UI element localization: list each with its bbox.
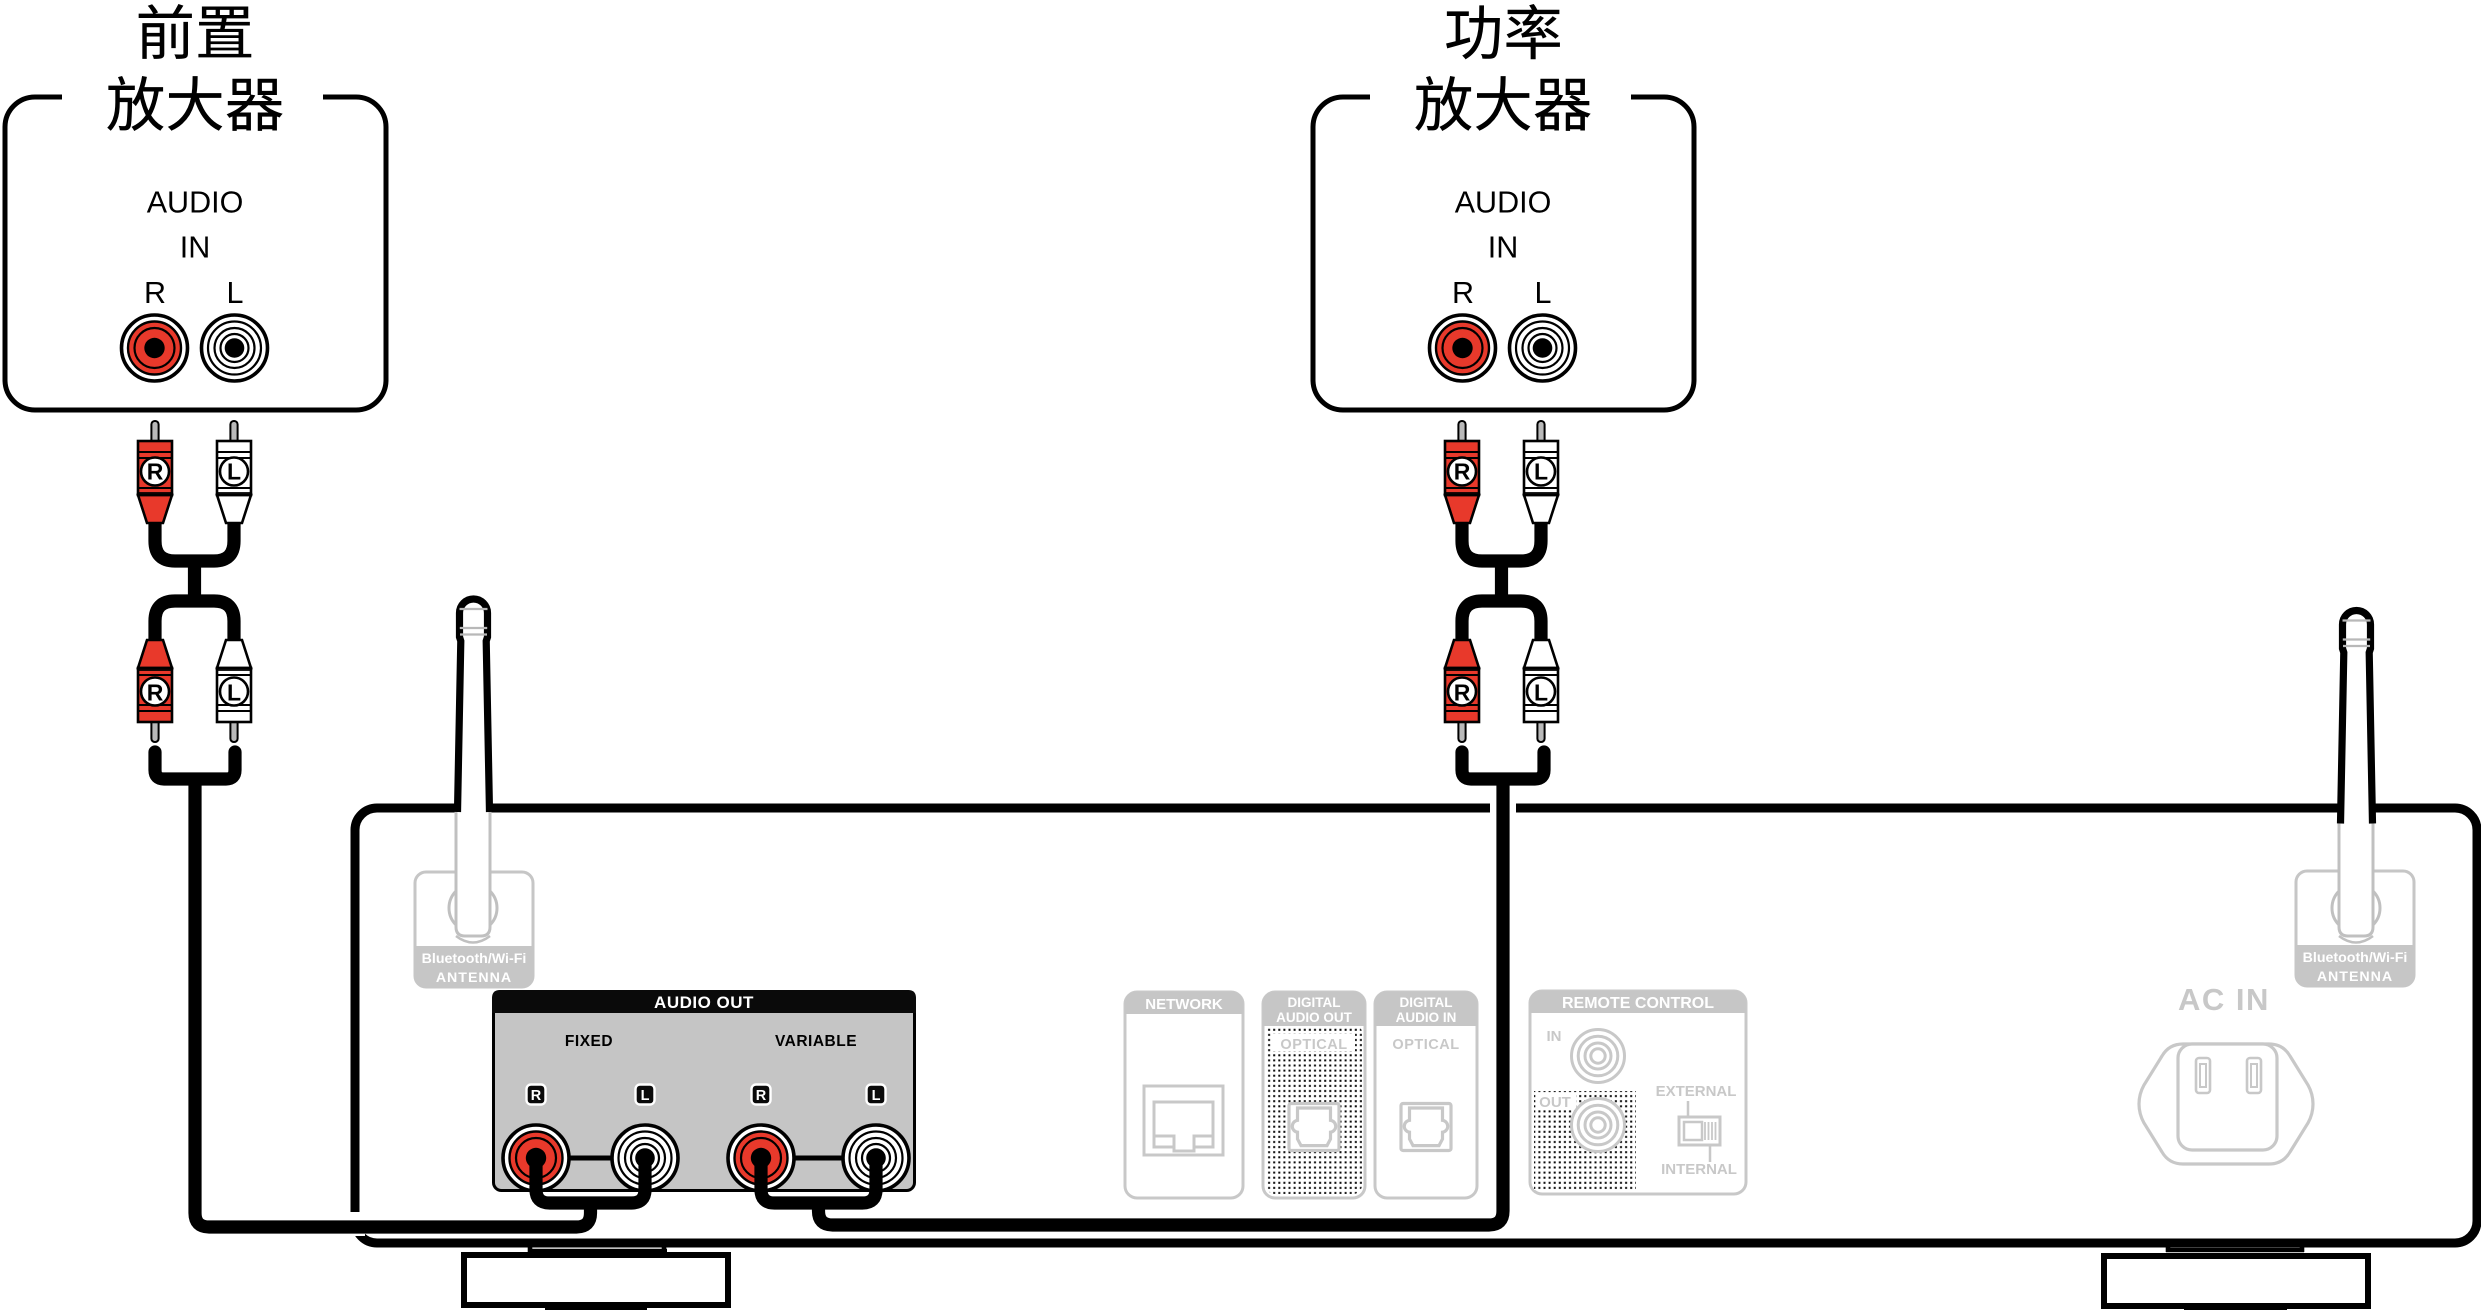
- svg-text:ANTENNA: ANTENNA: [436, 970, 512, 986]
- svg-text:AUDIO: AUDIO: [1455, 186, 1552, 220]
- svg-text:AUDIO OUT: AUDIO OUT: [654, 993, 754, 1012]
- svg-text:R: R: [147, 459, 164, 485]
- svg-text:R: R: [531, 1088, 542, 1104]
- svg-text:L: L: [1534, 680, 1548, 706]
- svg-text:ANTENNA: ANTENNA: [2317, 969, 2393, 985]
- svg-text:OPTICAL: OPTICAL: [1392, 1037, 1459, 1053]
- svg-text:DIGITAL: DIGITAL: [1288, 995, 1341, 1010]
- svg-text:OUT: OUT: [1539, 1094, 1571, 1111]
- svg-text:AC IN: AC IN: [2178, 982, 2270, 1017]
- svg-text:FIXED: FIXED: [565, 1033, 613, 1050]
- svg-text:EXTERNAL: EXTERNAL: [1656, 1083, 1737, 1100]
- svg-text:R: R: [144, 276, 166, 310]
- svg-text:R: R: [1452, 276, 1474, 310]
- svg-text:L: L: [641, 1088, 650, 1104]
- svg-text:Bluetooth/Wi-Fi: Bluetooth/Wi-Fi: [2303, 950, 2408, 966]
- svg-text:R: R: [147, 680, 164, 706]
- svg-text:IN: IN: [180, 231, 211, 265]
- svg-text:L: L: [1534, 459, 1548, 485]
- svg-text:AUDIO IN: AUDIO IN: [1396, 1010, 1457, 1025]
- svg-text:L: L: [1535, 276, 1552, 310]
- svg-text:OPTICAL: OPTICAL: [1280, 1037, 1347, 1053]
- svg-text:REMOTE CONTROL: REMOTE CONTROL: [1562, 995, 1714, 1012]
- svg-text:R: R: [1454, 680, 1471, 706]
- svg-text:VARIABLE: VARIABLE: [775, 1033, 857, 1050]
- svg-text:INTERNAL: INTERNAL: [1661, 1161, 1737, 1178]
- svg-text:NETWORK: NETWORK: [1145, 996, 1223, 1013]
- svg-text:L: L: [227, 680, 241, 706]
- svg-text:IN: IN: [1547, 1028, 1562, 1045]
- svg-text:AUDIO: AUDIO: [147, 186, 244, 220]
- svg-text:R: R: [1454, 459, 1471, 485]
- svg-text:R: R: [756, 1088, 767, 1104]
- svg-text:L: L: [227, 459, 241, 485]
- svg-text:L: L: [227, 276, 244, 310]
- svg-text:L: L: [872, 1088, 881, 1104]
- svg-text:AUDIO OUT: AUDIO OUT: [1276, 1010, 1353, 1025]
- svg-text:IN: IN: [1488, 231, 1519, 265]
- svg-text:Bluetooth/Wi-Fi: Bluetooth/Wi-Fi: [422, 951, 527, 967]
- svg-text:DIGITAL: DIGITAL: [1400, 995, 1453, 1010]
